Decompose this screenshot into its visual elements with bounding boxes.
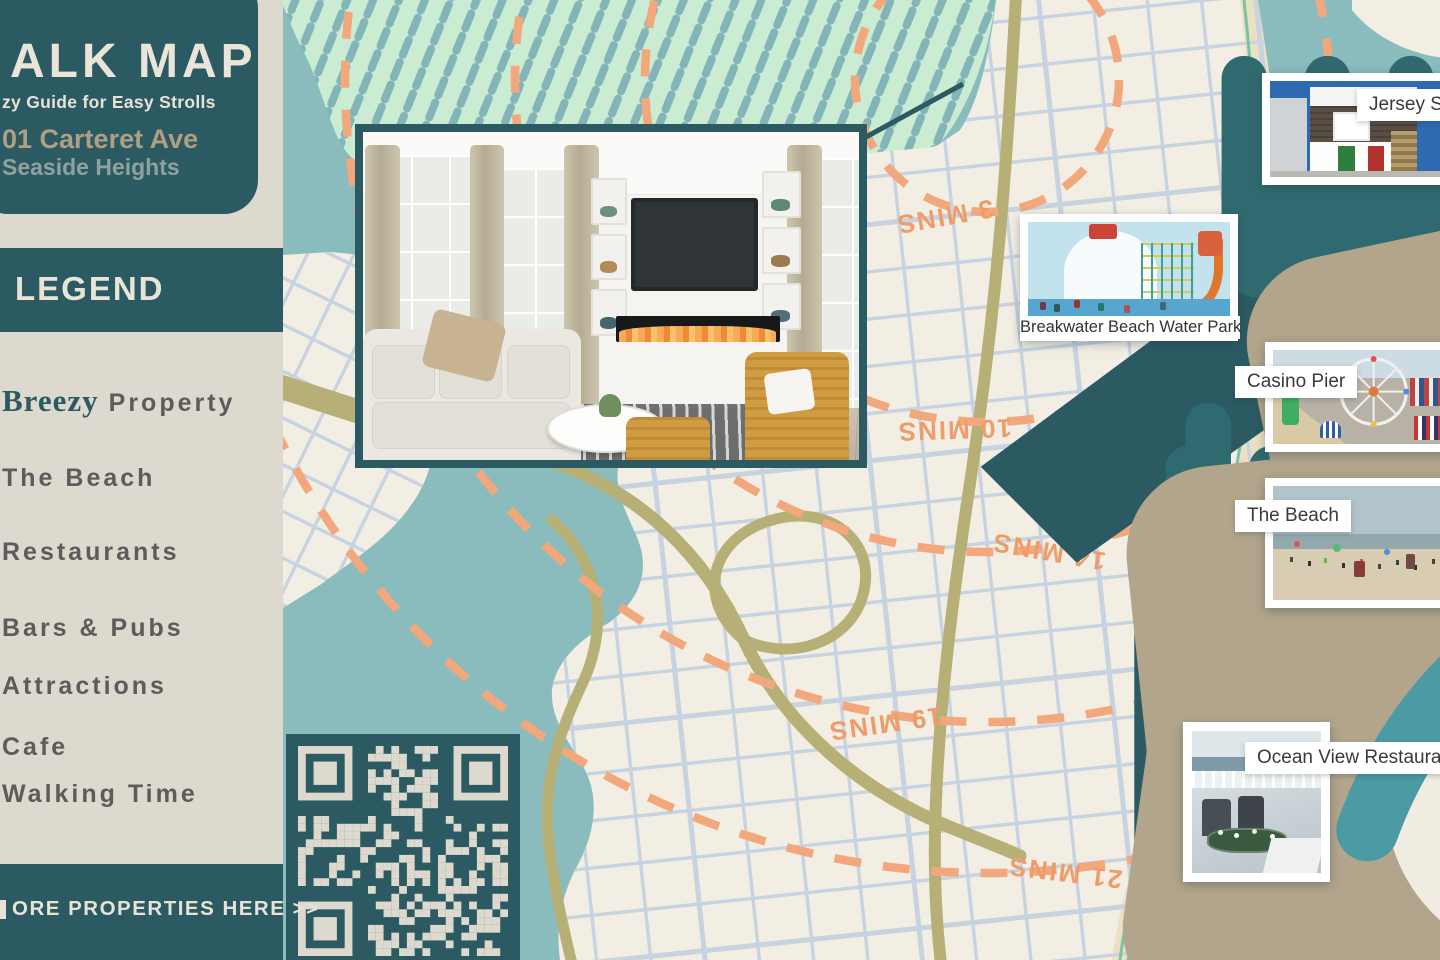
poi-card-ocean-view: Ocean View Restaurant	[1183, 722, 1330, 882]
armchair	[745, 352, 849, 460]
legend-item-restaurants: Restaurants	[2, 538, 180, 567]
legend-item-label: The Beach	[2, 464, 155, 493]
shelf-niche	[762, 171, 801, 218]
armchair	[626, 417, 710, 460]
tv	[631, 198, 758, 291]
legend-item-bars-pubs: Bars & Pubs	[2, 614, 184, 643]
legend-item-the-beach: The Beach	[2, 464, 155, 493]
poi-card-jersey-shore: Jersey Shore House	[1262, 73, 1440, 185]
shelf-niche	[762, 227, 801, 274]
legend-item-walking-time: Walking Time	[2, 780, 198, 809]
legend-band: LEGEND	[0, 248, 283, 332]
beach-crowd	[1290, 557, 1293, 562]
property-photo-frame	[355, 124, 867, 468]
shelf-niche	[591, 178, 627, 225]
legend-item-cafe: Cafe	[2, 733, 68, 762]
flames	[619, 326, 776, 342]
poi-label-text: Ocean View Restaurant	[1257, 747, 1440, 768]
shelf-niche	[591, 234, 627, 281]
legend-item-label: Attractions	[2, 672, 167, 701]
poi-label-text: Breakwater Beach Water Park	[1020, 318, 1241, 336]
poster-subtitle: zy Guide for Easy Strolls	[2, 92, 216, 113]
legend-item-label: Cafe	[2, 733, 68, 762]
breezy-logo: Breezy	[2, 383, 99, 419]
legend-item-label: Walking Time	[2, 780, 198, 809]
footer-strip: ORE PROPERTIES HERE >>	[0, 864, 283, 960]
header-card: ALK MAP zy Guide for Easy Strolls 01 Car…	[0, 0, 258, 214]
poi-card-label: Breakwater Beach Water Park	[1020, 316, 1240, 339]
pillow	[763, 368, 815, 415]
breakwater-photo	[1028, 222, 1230, 316]
legend-item-attractions: Attractions	[2, 672, 167, 701]
legend-item-breezy-property: Breezy Property	[2, 383, 235, 419]
property-city: Seaside Heights	[2, 154, 180, 181]
legend-item-label: Restaurants	[2, 538, 180, 567]
poi-label-text: Jersey Shore House	[1369, 94, 1440, 115]
property-photo	[363, 132, 859, 460]
property-address: 01 Carteret Ave	[2, 124, 198, 155]
legend-item-label: Property	[109, 389, 236, 418]
ring-label: 10 MINS	[896, 413, 1012, 447]
walk-map-poster: 3 MINS10 MINS14 MINS19 MINS21 MINS	[0, 0, 1440, 960]
poi-card-label: Ocean View Restaurant	[1245, 742, 1440, 774]
poster-title: ALK MAP	[10, 34, 257, 89]
poi-card-label: The Beach	[1235, 500, 1351, 532]
qr-code	[286, 734, 520, 960]
table-plant	[599, 394, 621, 417]
qr-code-grid	[298, 746, 508, 956]
poi-label-text: Casino Pier	[1247, 371, 1345, 392]
legend-heading: LEGEND	[15, 270, 165, 308]
legend-item-label: Bars & Pubs	[2, 614, 184, 643]
poi-card-breakwater: Breakwater Beach Water Park	[1020, 214, 1238, 341]
poi-card-label: Casino Pier	[1235, 366, 1357, 398]
poi-label-text: The Beach	[1247, 505, 1339, 526]
more-properties-link[interactable]: ORE PROPERTIES HERE >>	[12, 897, 320, 921]
poi-card-casino-pier: Casino Pier	[1265, 342, 1440, 452]
clipped-letter-fragment	[0, 900, 6, 919]
poi-card-label: Jersey Shore House	[1357, 89, 1440, 121]
sidebar: ALK MAP zy Guide for Easy Strolls 01 Car…	[0, 0, 283, 960]
fireplace	[616, 316, 780, 342]
poi-card-the-beach: The Beach	[1265, 478, 1440, 608]
